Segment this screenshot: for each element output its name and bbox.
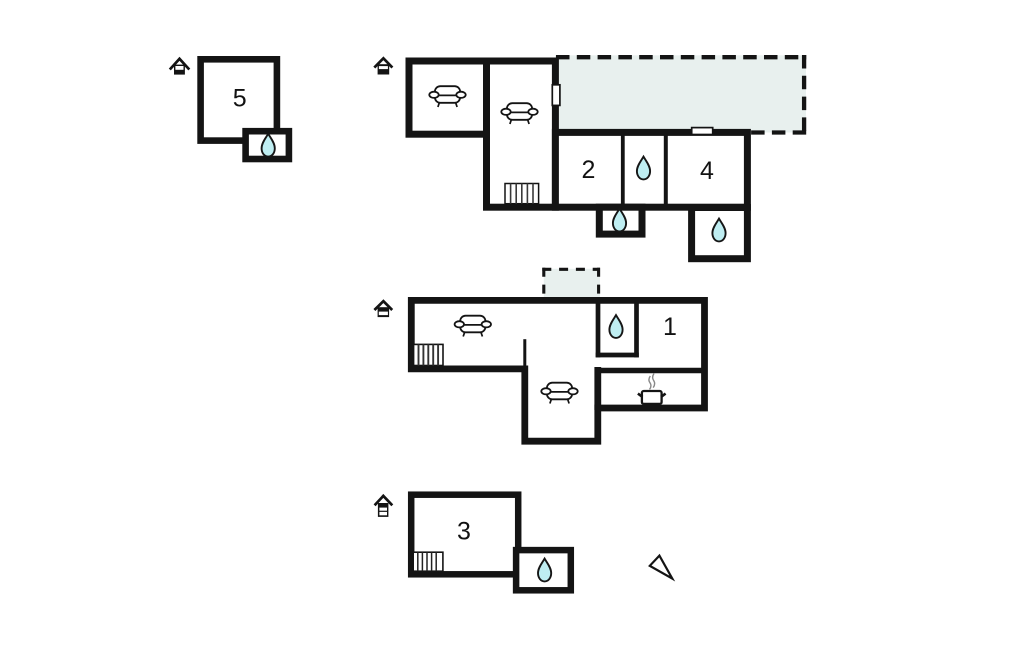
svg-text:2: 2 <box>582 156 596 184</box>
svg-text:4: 4 <box>700 157 714 185</box>
svg-text:1: 1 <box>663 313 677 341</box>
svg-text:3: 3 <box>457 518 471 546</box>
svg-text:5: 5 <box>233 85 247 113</box>
